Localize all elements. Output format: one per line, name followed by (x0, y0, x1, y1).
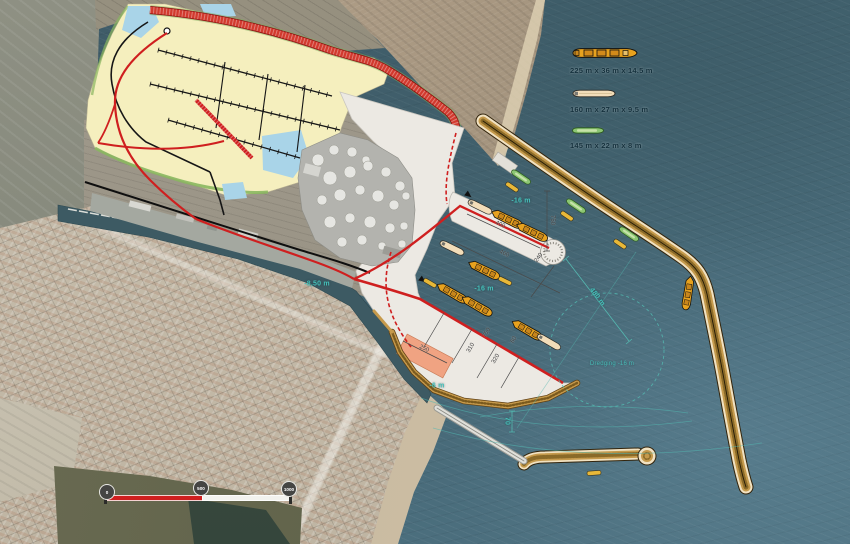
scale-label-0: 0 (99, 484, 115, 500)
water-basin-patch (222, 182, 247, 200)
cargo-ship-icon (439, 239, 465, 256)
scale-bar: 0 500 1000 (95, 478, 307, 518)
depth-label: -8,50 m (304, 281, 330, 288)
existing-jetty (437, 408, 524, 461)
coaster-ship-icon (565, 198, 586, 215)
depth-label: -16 m (474, 286, 493, 293)
plan-overlay (0, 0, 850, 544)
tanker-ship-icon (681, 276, 695, 311)
scale-label-1000: 1000 (281, 481, 297, 497)
legend-label: 160 m x 27 m x 9.5 m (570, 105, 648, 114)
distance-label: 70 (504, 417, 511, 425)
depth-label: -16 m (511, 198, 530, 205)
dredging-note: Dredging -16 m (590, 361, 634, 367)
depth-label: -6 m (429, 383, 444, 390)
coaster-ship-icon (570, 126, 606, 135)
scale-bar-white-segment (202, 495, 290, 501)
bulk-carrier-icon (570, 46, 640, 60)
bulk-carrier-icon (460, 294, 494, 318)
tug-boat-icon (587, 470, 601, 475)
scale-label-500: 500 (193, 480, 209, 496)
general-cargo-ship-icon (570, 88, 618, 99)
scale-tick-text: 1000 (284, 487, 294, 492)
dimension-label: 750 (549, 215, 555, 225)
scale-bar-red-segment (105, 495, 202, 501)
legend-item: 225 m x 36 m x 14.5 m (570, 46, 653, 75)
legend-item: 145 m x 22 m x 8 m (570, 122, 642, 150)
tug-boat-icon (423, 278, 437, 289)
port-masterplan-map: -16 m -16 m -8,50 m -6 m Dredging -16 m … (0, 0, 850, 544)
legend-item: 160 m x 27 m x 9.5 m (570, 86, 648, 114)
tug-boat-icon (498, 276, 513, 286)
legend-label: 145 m x 22 m x 8 m (570, 141, 642, 150)
coaster-ship-icon (510, 169, 531, 186)
tug-boat-icon (560, 210, 574, 221)
scale-tick-text: 500 (197, 486, 205, 491)
tug-boat-icon (505, 181, 519, 192)
legend-label: 225 m x 36 m x 14.5 m (570, 66, 653, 75)
tug-boat-icon (613, 238, 627, 249)
scale-tick-text: 0 (106, 490, 109, 495)
cargo-ship-icon (536, 333, 562, 352)
